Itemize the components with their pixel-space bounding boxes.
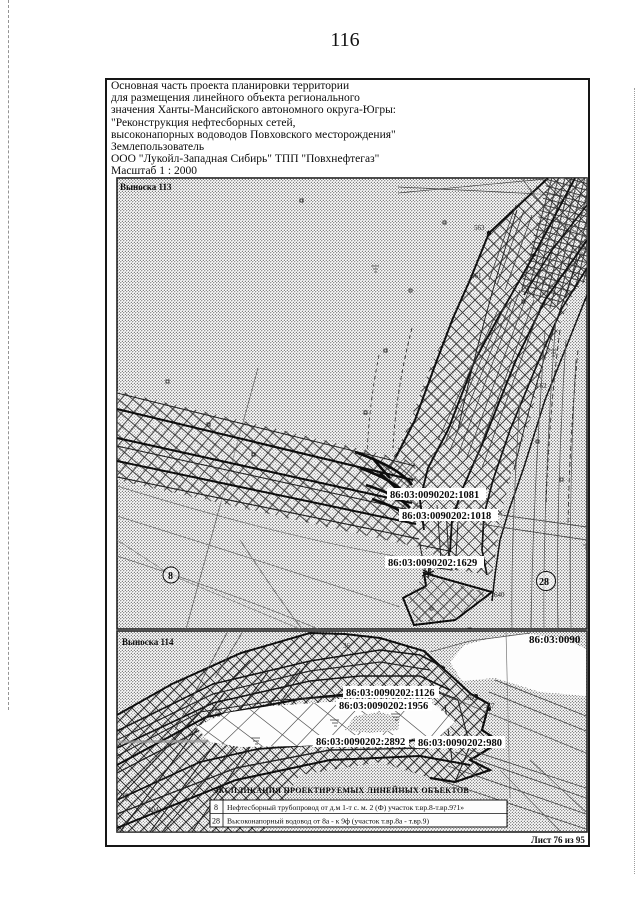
- svg-text:162: 162: [536, 382, 547, 390]
- svg-text:Высоконапорный водовод от 8а -: Высоконапорный водовод от 8а - к 9ф (уча…: [227, 817, 429, 826]
- svg-text:ЭКСПЛИКАЦИЯ ПРОЕКТИРУЕМЫХ ЛИНЕ: ЭКСПЛИКАЦИЯ ПРОЕКТИРУЕМЫХ ЛИНЕЙНЫХ ОБЪЕК…: [213, 786, 469, 795]
- svg-text:556: 556: [466, 694, 477, 702]
- svg-text:561: 561: [471, 272, 482, 280]
- svg-text:86:03:0090: 86:03:0090: [529, 634, 581, 646]
- svg-text:Выноска 113: Выноска 113: [120, 182, 172, 192]
- svg-text:86:03:0090202:1126: 86:03:0090202:1126: [346, 688, 435, 699]
- svg-text:563: 563: [474, 224, 485, 232]
- svg-text:Выноска 114: Выноска 114: [122, 637, 174, 647]
- svg-text:640: 640: [494, 591, 505, 599]
- svg-text:Нефтесборный трубопровод от д.: Нефтесборный трубопровод от д.м 1-т с. м…: [227, 803, 464, 812]
- svg-text:8: 8: [168, 571, 173, 582]
- svg-text:86:03:0090202:1629: 86:03:0090202:1629: [388, 558, 477, 569]
- svg-text:104: 104: [148, 806, 159, 814]
- svg-text:86:03:0090202:1081: 86:03:0090202:1081: [390, 490, 479, 501]
- svg-text:28: 28: [539, 577, 549, 588]
- svg-text:86:03:0090202:1956: 86:03:0090202:1956: [339, 701, 428, 712]
- svg-text:36: 36: [343, 642, 351, 650]
- svg-text:8: 8: [214, 803, 218, 812]
- svg-text:86:03:0090202:2892: 86:03:0090202:2892: [316, 737, 405, 748]
- svg-text:86:03:0090202:1018: 86:03:0090202:1018: [402, 511, 491, 522]
- svg-text:28: 28: [212, 817, 220, 826]
- svg-text:557: 557: [484, 702, 495, 710]
- svg-text:86:03:0090202:980: 86:03:0090202:980: [418, 738, 502, 749]
